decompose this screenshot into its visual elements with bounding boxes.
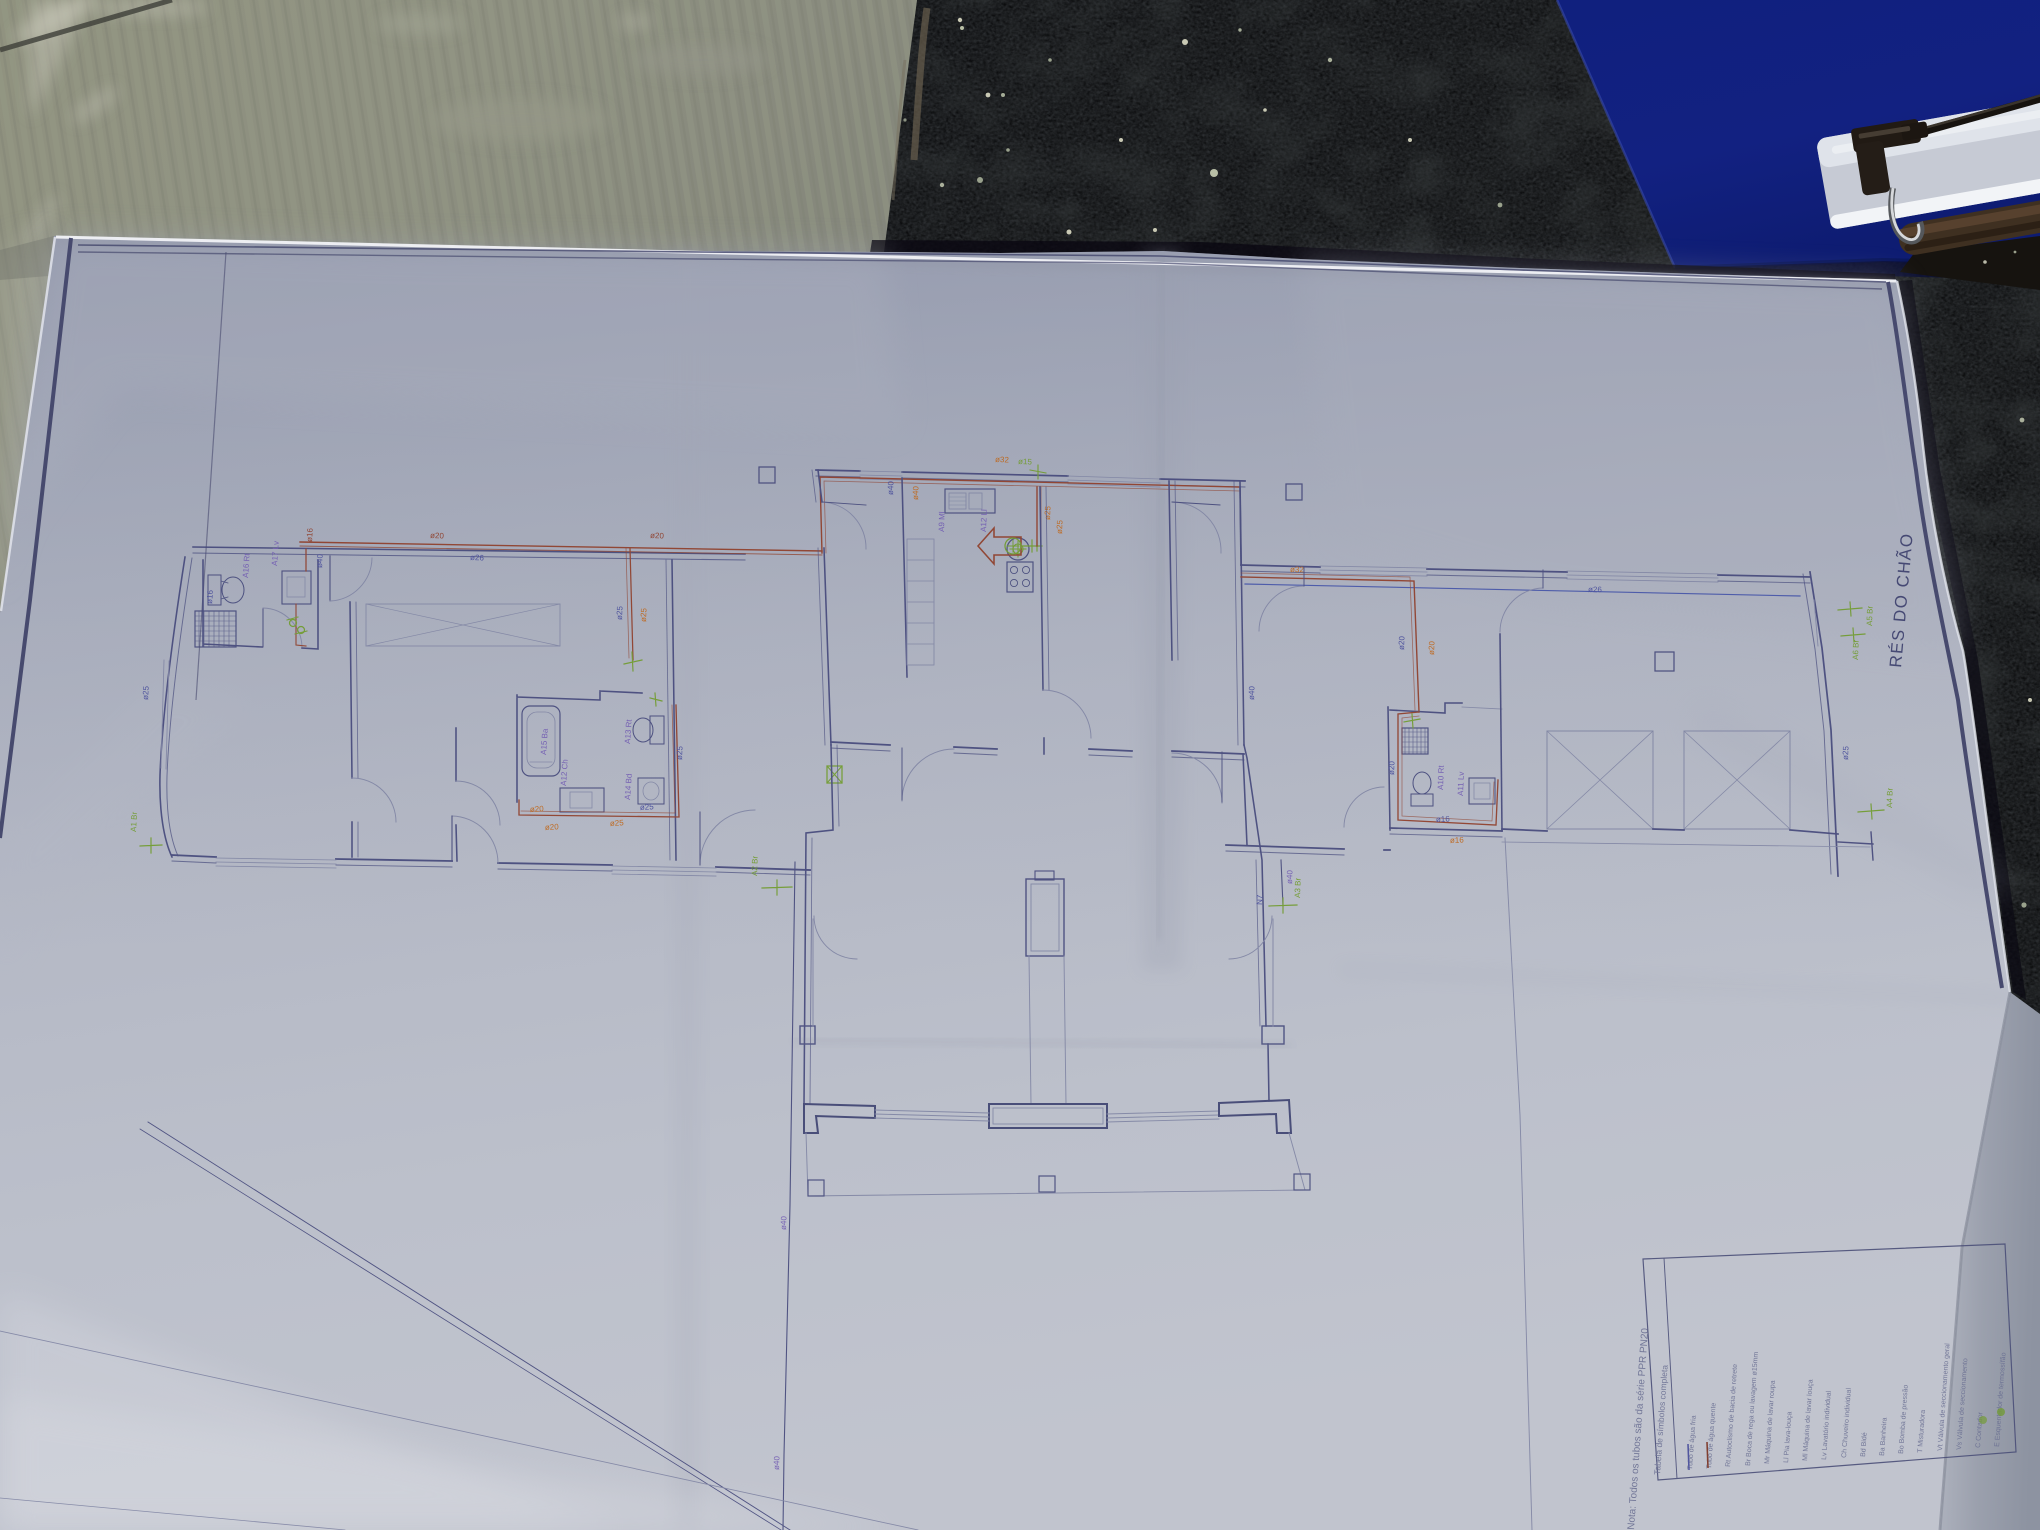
svg-text:ø40: ø40 — [886, 480, 895, 495]
svg-text:ø26: ø26 — [1588, 585, 1602, 594]
svg-text:ø20: ø20 — [1387, 760, 1396, 775]
svg-text:A2 Br: A2 Br — [750, 855, 760, 876]
svg-text:ø40: ø40 — [779, 1215, 788, 1230]
svg-text:ø32: ø32 — [995, 455, 1010, 464]
svg-text:ø25: ø25 — [675, 745, 684, 760]
svg-text:ø20: ø20 — [650, 531, 665, 540]
svg-text:ø25: ø25 — [615, 605, 624, 620]
svg-text:ø20: ø20 — [1427, 640, 1436, 655]
svg-text:ø16: ø16 — [1450, 836, 1465, 845]
svg-text:ø25: ø25 — [639, 607, 648, 622]
svg-text:ø16: ø16 — [205, 589, 215, 604]
svg-text:A3 Br: A3 Br — [1293, 877, 1303, 898]
svg-text:N7: N7 — [1255, 894, 1264, 905]
svg-text:A10 Rt: A10 Rt — [1436, 765, 1446, 791]
svg-text:ø25: ø25 — [141, 685, 151, 700]
svg-text:A1 Br: A1 Br — [129, 811, 139, 832]
svg-text:A12 Ll: A12 Ll — [979, 509, 989, 532]
svg-text:ø20: ø20 — [430, 531, 445, 540]
svg-text:ø40: ø40 — [1285, 869, 1294, 884]
svg-text:A6 Br: A6 Br — [1851, 639, 1861, 660]
svg-text:A13 Rt: A13 Rt — [623, 718, 634, 744]
svg-text:A9 Ml: A9 Ml — [937, 511, 947, 532]
svg-text:A17 Lv: A17 Lv — [270, 541, 281, 566]
svg-text:ø20: ø20 — [545, 822, 560, 832]
svg-text:ø16: ø16 — [1436, 815, 1451, 824]
svg-text:A4 Br: A4 Br — [1885, 787, 1895, 808]
svg-text:A15 Ba: A15 Ba — [539, 728, 550, 755]
svg-text:ø40: ø40 — [772, 1455, 781, 1470]
svg-text:ø20: ø20 — [1397, 635, 1406, 650]
svg-text:ø20: ø20 — [530, 804, 545, 814]
svg-text:A14 Bd: A14 Bd — [623, 773, 634, 800]
svg-text:ø25: ø25 — [640, 802, 655, 812]
svg-text:ø26: ø26 — [470, 553, 485, 562]
svg-text:A5 Br: A5 Br — [1865, 605, 1875, 626]
svg-text:A11 Lv: A11 Lv — [1456, 771, 1466, 796]
svg-text:ø25: ø25 — [1841, 745, 1850, 760]
svg-text:ø40: ø40 — [911, 485, 920, 500]
svg-text:ø32: ø32 — [1290, 565, 1304, 574]
svg-text:ø40: ø40 — [1247, 685, 1256, 700]
svg-text:ø25: ø25 — [1055, 519, 1064, 534]
svg-text:ø25: ø25 — [610, 818, 625, 828]
svg-text:ø15: ø15 — [1018, 457, 1033, 466]
svg-text:A16 Rt: A16 Rt — [241, 552, 252, 578]
svg-text:ø40: ø40 — [315, 553, 325, 568]
svg-text:ø16: ø16 — [305, 527, 315, 542]
svg-text:ø25: ø25 — [1043, 505, 1052, 520]
svg-text:A12 Ch: A12 Ch — [559, 759, 570, 786]
